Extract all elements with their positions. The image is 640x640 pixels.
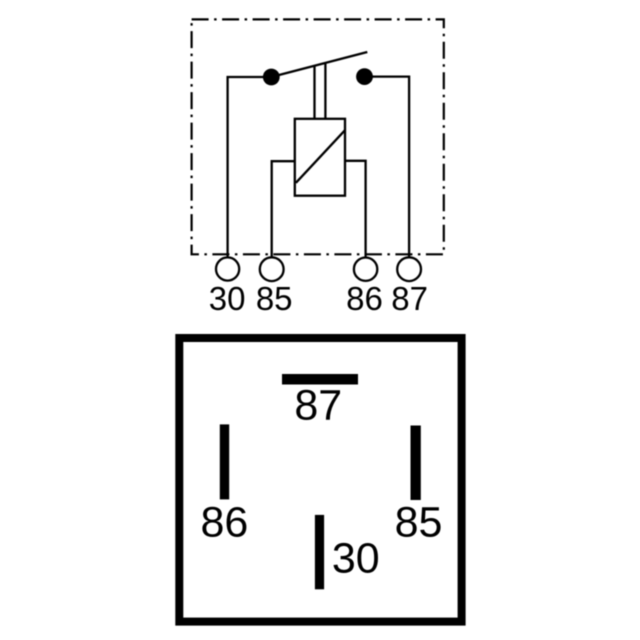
svg-text:86: 86	[200, 499, 248, 547]
svg-text:87: 87	[391, 280, 428, 317]
svg-text:30: 30	[209, 280, 246, 317]
svg-text:86: 86	[346, 280, 383, 317]
svg-text:87: 87	[294, 382, 342, 430]
svg-text:30: 30	[332, 535, 380, 583]
svg-text:85: 85	[395, 499, 443, 547]
svg-text:85: 85	[256, 280, 293, 317]
